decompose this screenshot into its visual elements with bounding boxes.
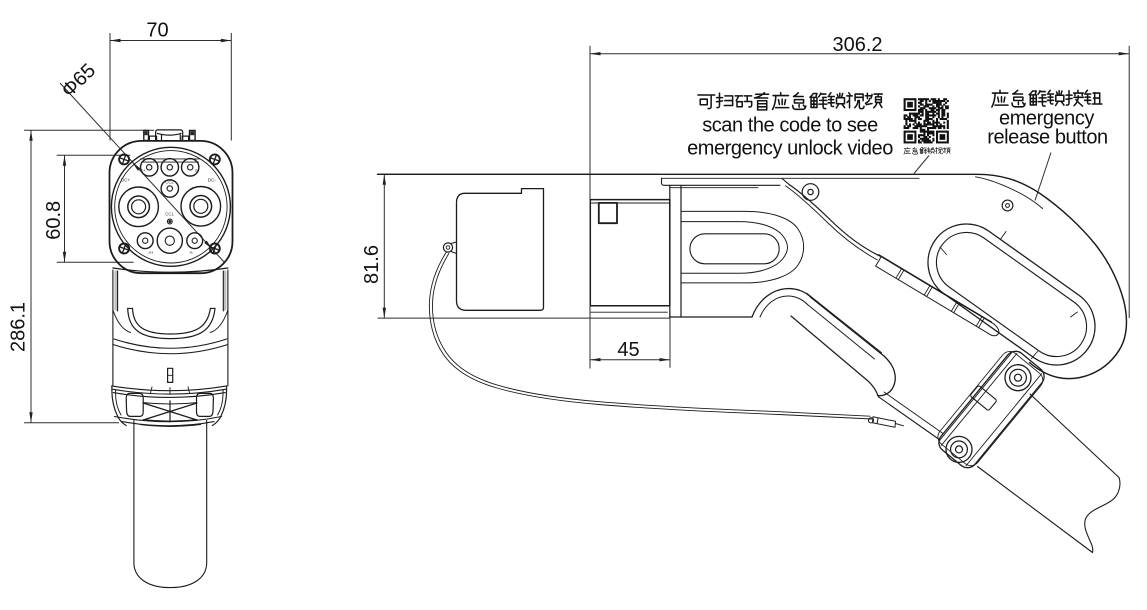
svg-text:DC-: DC- xyxy=(208,177,217,182)
svg-text:70: 70 xyxy=(146,20,168,42)
svg-text:60.8: 60.8 xyxy=(43,201,65,240)
svg-text:S-: S- xyxy=(195,168,200,173)
svg-text:A+: A+ xyxy=(149,250,155,255)
svg-text:CC2: CC2 xyxy=(165,179,174,184)
svg-text:CC1: CC1 xyxy=(165,212,174,217)
svg-text:45: 45 xyxy=(617,339,639,361)
svg-text:81.6: 81.6 xyxy=(361,245,383,284)
svg-text:A-: A- xyxy=(190,250,195,255)
svg-text:scan the code to see: scan the code to see xyxy=(702,115,878,137)
svg-text:306.2: 306.2 xyxy=(832,34,882,56)
svg-text:emergency unlock video: emergency unlock video xyxy=(687,138,893,160)
svg-text:286.1: 286.1 xyxy=(8,302,30,352)
svg-text:DC+: DC+ xyxy=(121,177,131,182)
svg-text:release button: release button xyxy=(987,127,1107,149)
svg-text:S+: S+ xyxy=(140,168,146,173)
